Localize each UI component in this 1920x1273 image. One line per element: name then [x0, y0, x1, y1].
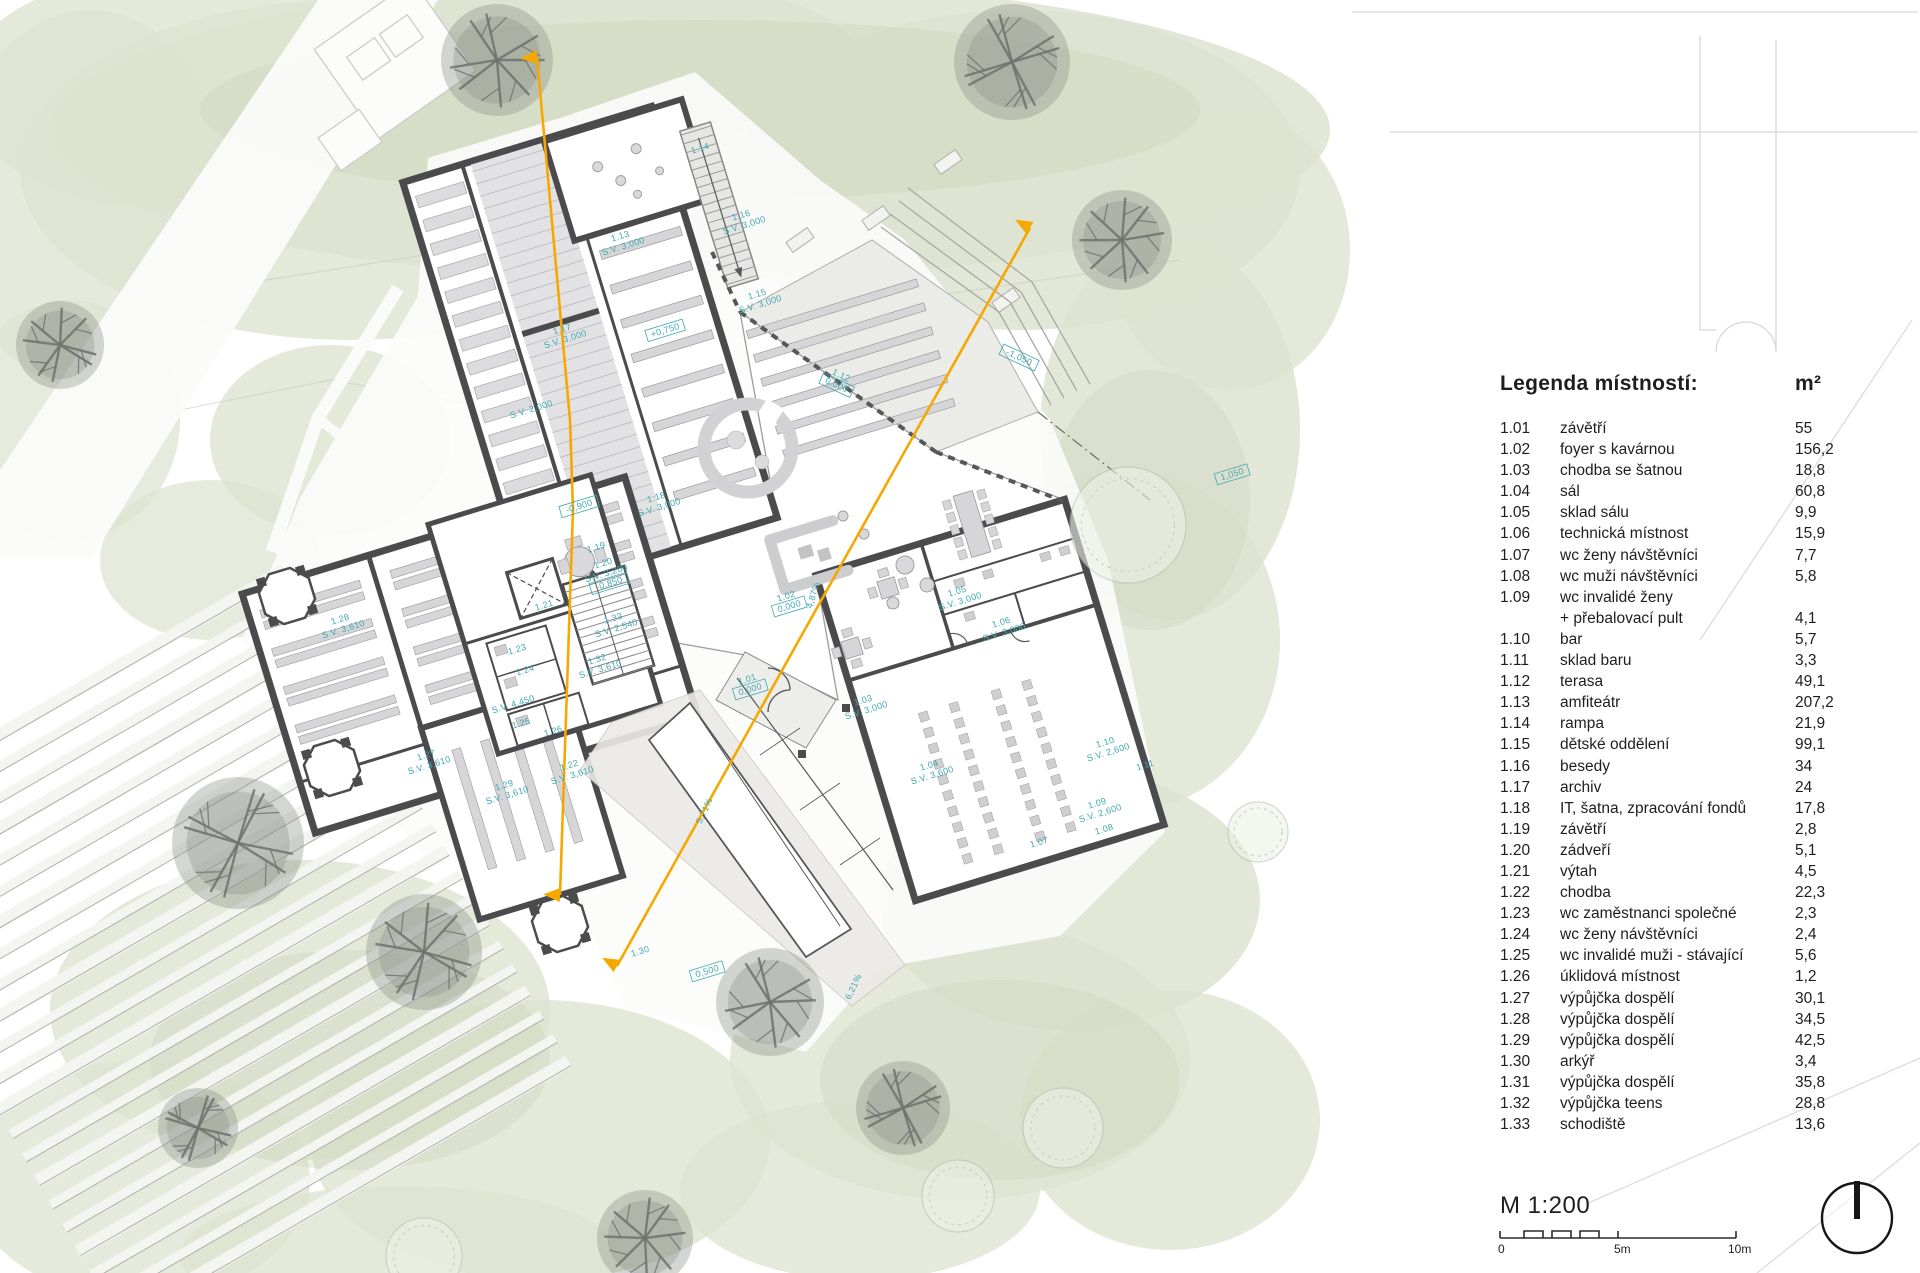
- legend-row: + přebalovací pult4,1: [1500, 608, 1920, 629]
- legend-row-number: 1.29: [1500, 1030, 1560, 1051]
- legend-row: 1.12terasa49,1: [1500, 671, 1920, 692]
- tree-icon: [856, 1061, 950, 1155]
- legend-row-area: 3,4: [1795, 1051, 1920, 1072]
- legend-row-name: úklidová místnost: [1560, 966, 1795, 987]
- legend-row-name: rampa: [1560, 713, 1795, 734]
- legend-row-number: 1.05: [1500, 502, 1560, 523]
- legend-row-name: + přebalovací pult: [1560, 608, 1795, 629]
- legend-row-number: 1.28: [1500, 1009, 1560, 1030]
- legend-row: 1.16besedy34: [1500, 756, 1920, 777]
- legend-row-name: výpůjčka teens: [1560, 1093, 1795, 1114]
- legend-row-name: závětří: [1560, 418, 1795, 439]
- legend-row-area: 17,8: [1795, 798, 1920, 819]
- legend-row: 1.02foyer s kavárnou156,2: [1500, 439, 1920, 460]
- legend-row-number: 1.22: [1500, 882, 1560, 903]
- legend-row: 1.26úklidová místnost1,2: [1500, 966, 1920, 987]
- legend-row-name: výpůjčka dospělí: [1560, 1030, 1795, 1051]
- legend-row-area: 30,1: [1795, 988, 1920, 1009]
- legend-row-number: 1.20: [1500, 840, 1560, 861]
- legend-row-name: technická místnost: [1560, 523, 1795, 544]
- legend-row-name: výpůjčka dospělí: [1560, 988, 1795, 1009]
- legend-row-name: archiv: [1560, 777, 1795, 798]
- legend-row-area: 28,8: [1795, 1093, 1920, 1114]
- legend-row-name: zádveří: [1560, 840, 1795, 861]
- legend-row-number: [1500, 608, 1560, 629]
- legend-row: 1.14rampa21,9: [1500, 713, 1920, 734]
- legend-row-number: 1.06: [1500, 523, 1560, 544]
- legend-row-area: 2,3: [1795, 903, 1920, 924]
- legend-row: 1.07wc ženy návštěvníci7,7: [1500, 545, 1920, 566]
- legend-row: 1.25wc invalidé muži - stávající5,6: [1500, 945, 1920, 966]
- legend-rows: 1.01závětří551.02foyer s kavárnou156,21.…: [1500, 418, 1920, 1135]
- legend-row: 1.24wc ženy návštěvníci2,4: [1500, 924, 1920, 945]
- legend-row-area: 22,3: [1795, 882, 1920, 903]
- legend-row-number: 1.19: [1500, 819, 1560, 840]
- tree-icon: [172, 777, 304, 909]
- legend-row-number: 1.04: [1500, 481, 1560, 502]
- legend-row: 1.06technická místnost15,9: [1500, 523, 1920, 544]
- legend-row-area: 207,2: [1795, 692, 1920, 713]
- legend-row-number: 1.17: [1500, 777, 1560, 798]
- legend-row-number: 1.08: [1500, 566, 1560, 587]
- legend-row-name: wc ženy návštěvníci: [1560, 545, 1795, 566]
- legend-row-number: 1.25: [1500, 945, 1560, 966]
- legend-unit-header: m²: [1795, 372, 1920, 396]
- legend-row-name: sál: [1560, 481, 1795, 502]
- legend-row-area: 4,1: [1795, 608, 1920, 629]
- legend-row: 1.22chodba22,3: [1500, 882, 1920, 903]
- legend-row-area: 55: [1795, 418, 1920, 439]
- legend-row-name: závětří: [1560, 819, 1795, 840]
- room-legend: Legenda místností: m² 1.01závětří551.02f…: [1500, 372, 1920, 1135]
- legend-row-area: 35,8: [1795, 1072, 1920, 1093]
- legend-row-number: 1.32: [1500, 1093, 1560, 1114]
- legend-row-name: dětské oddělení: [1560, 734, 1795, 755]
- legend-title: Legenda místností:: [1500, 372, 1795, 396]
- legend-row-area: 49,1: [1795, 671, 1920, 692]
- tree-icon: [16, 301, 104, 389]
- legend-row-number: 1.23: [1500, 903, 1560, 924]
- scale-tick-label: 0: [1498, 1242, 1505, 1256]
- legend-row: 1.33schodiště13,6: [1500, 1114, 1920, 1135]
- legend-row: 1.28výpůjčka dospělí34,5: [1500, 1009, 1920, 1030]
- legend-row-area: 5,8: [1795, 566, 1920, 587]
- legend-row: 1.23wc zaměstnanci společné2,3: [1500, 903, 1920, 924]
- legend-row: 1.09wc invalidé ženy: [1500, 587, 1920, 608]
- legend-row-area: 34: [1795, 756, 1920, 777]
- legend-row-number: 1.12: [1500, 671, 1560, 692]
- tree-icon: [1072, 190, 1172, 290]
- legend-row-number: 1.24: [1500, 924, 1560, 945]
- legend-row: 1.32výpůjčka teens28,8: [1500, 1093, 1920, 1114]
- legend-row-number: 1.26: [1500, 966, 1560, 987]
- legend-row-area: 1,2: [1795, 966, 1920, 987]
- legend-row-area: 3,3: [1795, 650, 1920, 671]
- legend-row-area: 2,8: [1795, 819, 1920, 840]
- legend-row-number: 1.30: [1500, 1051, 1560, 1072]
- legend-row: 1.15dětské oddělení99,1: [1500, 734, 1920, 755]
- leafy-tree-icon: [1228, 802, 1288, 862]
- legend-row-area: 60,8: [1795, 481, 1920, 502]
- legend-row: 1.27výpůjčka dospělí30,1: [1500, 988, 1920, 1009]
- legend-row: 1.01závětří55: [1500, 418, 1920, 439]
- legend-row-name: wc muži návštěvníci: [1560, 566, 1795, 587]
- tree-icon: [366, 894, 482, 1010]
- legend-row: 1.04sál60,8: [1500, 481, 1920, 502]
- legend-row-number: 1.15: [1500, 734, 1560, 755]
- legend-row: 1.29výpůjčka dospělí42,5: [1500, 1030, 1920, 1051]
- legend-row: 1.10bar5,7: [1500, 629, 1920, 650]
- legend-row-number: 1.11: [1500, 650, 1560, 671]
- legend-row: 1.31výpůjčka dospělí35,8: [1500, 1072, 1920, 1093]
- legend-row: 1.30arkýř3,4: [1500, 1051, 1920, 1072]
- legend-row-name: arkýř: [1560, 1051, 1795, 1072]
- legend-row-area: 2,4: [1795, 924, 1920, 945]
- legend-row-name: wc ženy návštěvníci: [1560, 924, 1795, 945]
- legend-row-area: 156,2: [1795, 439, 1920, 460]
- legend-row-name: chodba: [1560, 882, 1795, 903]
- legend-row-area: 42,5: [1795, 1030, 1920, 1051]
- leafy-tree-icon: [922, 1160, 994, 1232]
- tree-icon: [954, 4, 1070, 120]
- legend-row: 1.20zádveří5,1: [1500, 840, 1920, 861]
- legend-row-name: výpůjčka dospělí: [1560, 1009, 1795, 1030]
- legend-row: 1.13amfiteátr207,2: [1500, 692, 1920, 713]
- scale-tick-label: 5m: [1614, 1242, 1631, 1256]
- tree-icon: [158, 1088, 238, 1168]
- legend-row-area: 13,6: [1795, 1114, 1920, 1135]
- legend-row-name: schodiště: [1560, 1114, 1795, 1135]
- legend-row-area: 99,1: [1795, 734, 1920, 755]
- legend-row-area: 15,9: [1795, 523, 1920, 544]
- legend-row-number: 1.03: [1500, 460, 1560, 481]
- legend-row-name: wc invalidé ženy: [1560, 587, 1795, 608]
- scale-bar: 05m10m: [1498, 1222, 1758, 1258]
- legend-row-number: 1.18: [1500, 798, 1560, 819]
- legend-row-area: 21,9: [1795, 713, 1920, 734]
- legend-row-name: IT, šatna, zpracování fondů: [1560, 798, 1795, 819]
- legend-row-number: 1.33: [1500, 1114, 1560, 1135]
- legend-row-area: 24: [1795, 777, 1920, 798]
- scale-label: M 1:200: [1500, 1192, 1590, 1220]
- legend-row-number: 1.07: [1500, 545, 1560, 566]
- scale-tick-label: 10m: [1728, 1242, 1751, 1256]
- legend-row: 1.21výtah4,5: [1500, 861, 1920, 882]
- legend-row: 1.05sklad sálu9,9: [1500, 502, 1920, 523]
- legend-row-number: 1.01: [1500, 418, 1560, 439]
- legend-row-name: sklad sálu: [1560, 502, 1795, 523]
- legend-row-name: wc zaměstnanci společné: [1560, 903, 1795, 924]
- legend-row: 1.08wc muži návštěvníci5,8: [1500, 566, 1920, 587]
- legend-row: 1.17archiv24: [1500, 777, 1920, 798]
- leafy-tree-icon: [1023, 1088, 1103, 1168]
- legend-row-number: 1.13: [1500, 692, 1560, 713]
- legend-row-area: 34,5: [1795, 1009, 1920, 1030]
- leafy-tree-icon: [1070, 467, 1186, 583]
- legend-row-name: terasa: [1560, 671, 1795, 692]
- legend-row-area: [1795, 587, 1920, 608]
- legend-row-number: 1.16: [1500, 756, 1560, 777]
- legend-row: 1.11sklad baru3,3: [1500, 650, 1920, 671]
- tree-icon: [716, 948, 824, 1056]
- legend-row-area: 7,7: [1795, 545, 1920, 566]
- legend-row-area: 9,9: [1795, 502, 1920, 523]
- legend-row-name: chodba se šatnou: [1560, 460, 1795, 481]
- legend-row: 1.19závětří2,8: [1500, 819, 1920, 840]
- legend-row-number: 1.21: [1500, 861, 1560, 882]
- legend-row: 1.18IT, šatna, zpracování fondů17,8: [1500, 798, 1920, 819]
- legend-row-number: 1.09: [1500, 587, 1560, 608]
- north-arrow-icon: [1815, 1176, 1899, 1260]
- legend-row-area: 5,7: [1795, 629, 1920, 650]
- legend-row-area: 18,8: [1795, 460, 1920, 481]
- legend-row-number: 1.31: [1500, 1072, 1560, 1093]
- legend-row-number: 1.10: [1500, 629, 1560, 650]
- legend-row-area: 5,6: [1795, 945, 1920, 966]
- legend-row-name: foyer s kavárnou: [1560, 439, 1795, 460]
- legend-row-name: besedy: [1560, 756, 1795, 777]
- legend-row-name: výpůjčka dospělí: [1560, 1072, 1795, 1093]
- legend-row-name: wc invalidé muži - stávající: [1560, 945, 1795, 966]
- legend-row-number: 1.27: [1500, 988, 1560, 1009]
- legend-row-name: amfiteátr: [1560, 692, 1795, 713]
- legend-row-number: 1.14: [1500, 713, 1560, 734]
- legend-row-name: výtah: [1560, 861, 1795, 882]
- legend-row: 1.03chodba se šatnou18,8: [1500, 460, 1920, 481]
- legend-row-name: bar: [1560, 629, 1795, 650]
- legend-row-area: 5,1: [1795, 840, 1920, 861]
- legend-row-name: sklad baru: [1560, 650, 1795, 671]
- legend-row-number: 1.02: [1500, 439, 1560, 460]
- legend-row-area: 4,5: [1795, 861, 1920, 882]
